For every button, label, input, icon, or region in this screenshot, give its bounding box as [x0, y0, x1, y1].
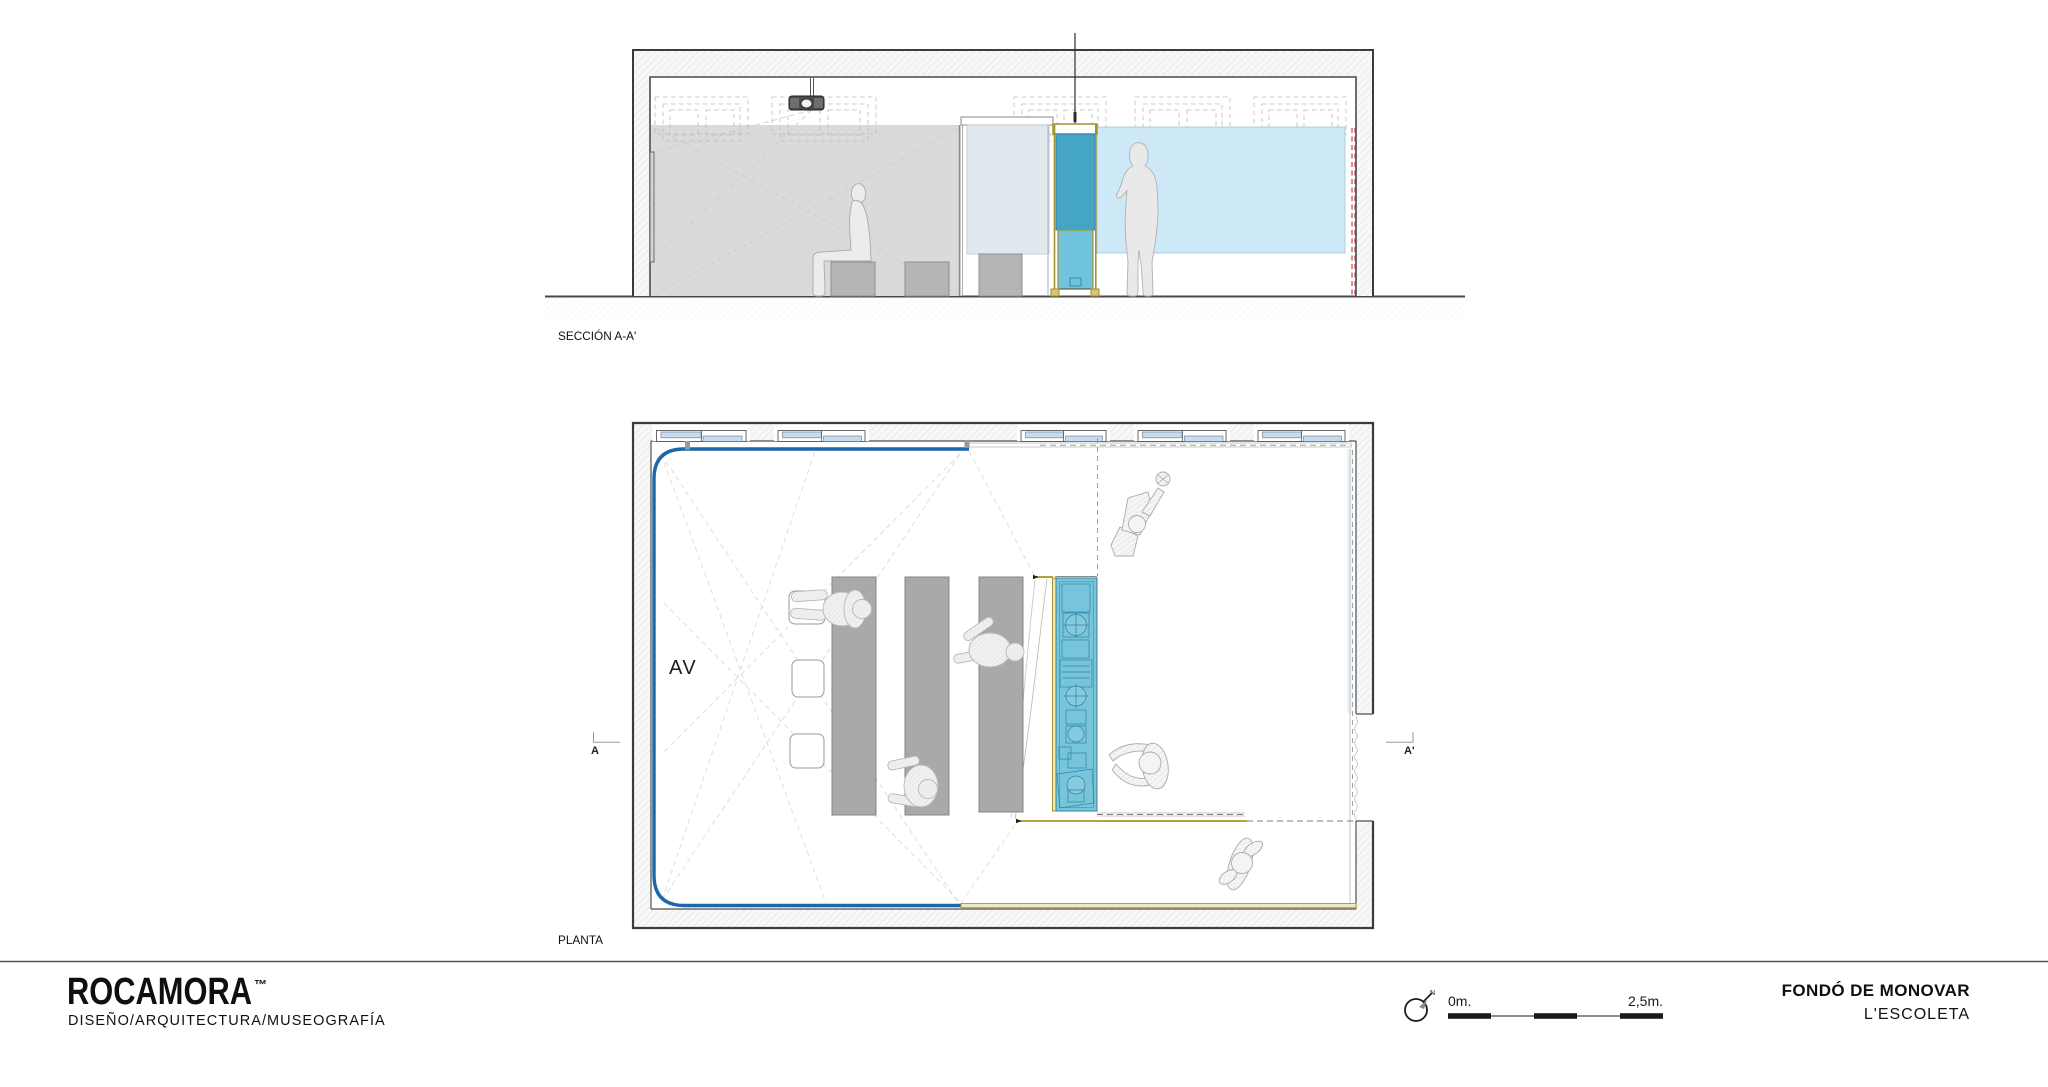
svg-text:DISEÑO/ARQUITECTURA/MUSEOGRAFÍ: DISEÑO/ARQUITECTURA/MUSEOGRAFÍA: [68, 1012, 386, 1029]
svg-text:FONDÓ DE MONOVAR: FONDÓ DE MONOVAR: [1782, 981, 1970, 1000]
svg-text:2,5m.: 2,5m.: [1628, 993, 1663, 1009]
svg-text:™: ™: [254, 977, 267, 992]
svg-text:0m.: 0m.: [1448, 993, 1471, 1009]
svg-text:A: A: [591, 745, 599, 757]
svg-text:AV: AV: [669, 657, 697, 679]
svg-text:PLANTA: PLANTA: [558, 933, 603, 947]
svg-text:SECCIÓN A-A': SECCIÓN A-A': [558, 329, 636, 343]
svg-text:N: N: [1430, 990, 1435, 997]
svg-text:L'ESCOLETA: L'ESCOLETA: [1864, 1006, 1970, 1023]
svg-text:ROCAMORA: ROCAMORA: [67, 971, 252, 1013]
svg-text:A': A': [1404, 745, 1415, 757]
